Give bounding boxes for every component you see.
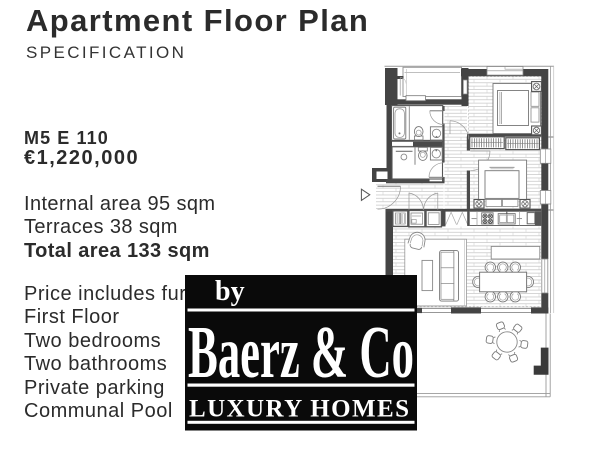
svg-text:by: by (215, 276, 245, 307)
svg-text:Baerz & Co: Baerz & Co (188, 312, 414, 394)
